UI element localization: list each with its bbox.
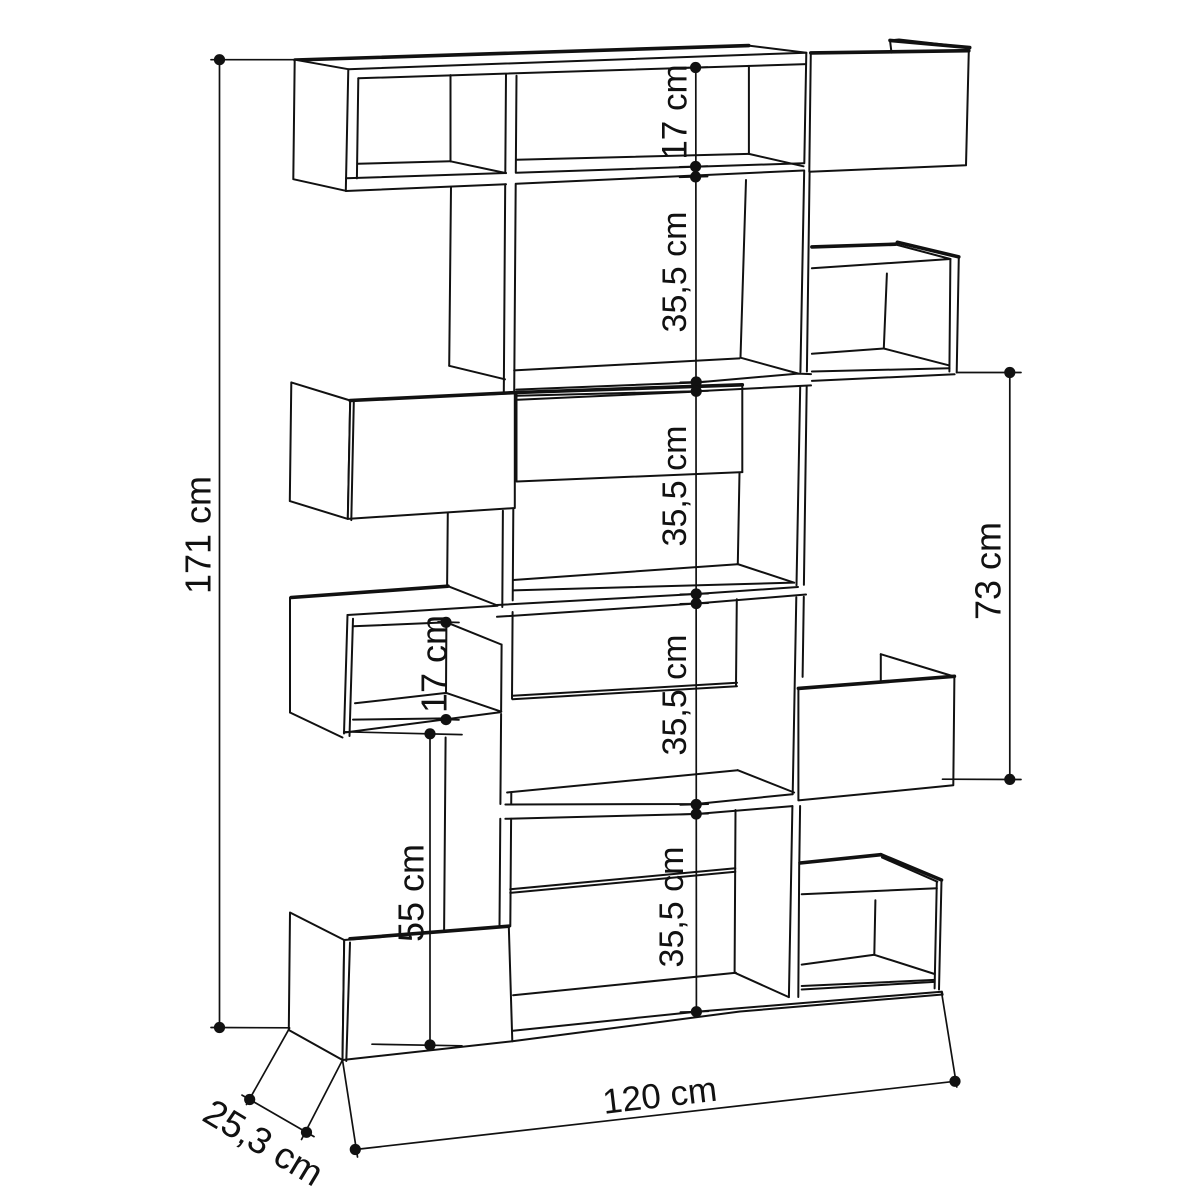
svg-text:35,5 cm: 35,5 cm (656, 635, 694, 756)
svg-text:17 cm: 17 cm (655, 64, 694, 159)
svg-text:35,5 cm: 35,5 cm (653, 847, 691, 968)
svg-text:73 cm: 73 cm (968, 522, 1009, 620)
svg-text:120 cm: 120 cm (600, 1070, 719, 1122)
svg-text:35,5 cm: 35,5 cm (656, 426, 694, 547)
svg-text:55 cm: 55 cm (391, 844, 432, 942)
svg-text:35,5 cm: 35,5 cm (656, 212, 694, 333)
svg-text:17 cm: 17 cm (414, 615, 455, 713)
svg-text:171 cm: 171 cm (178, 476, 219, 594)
